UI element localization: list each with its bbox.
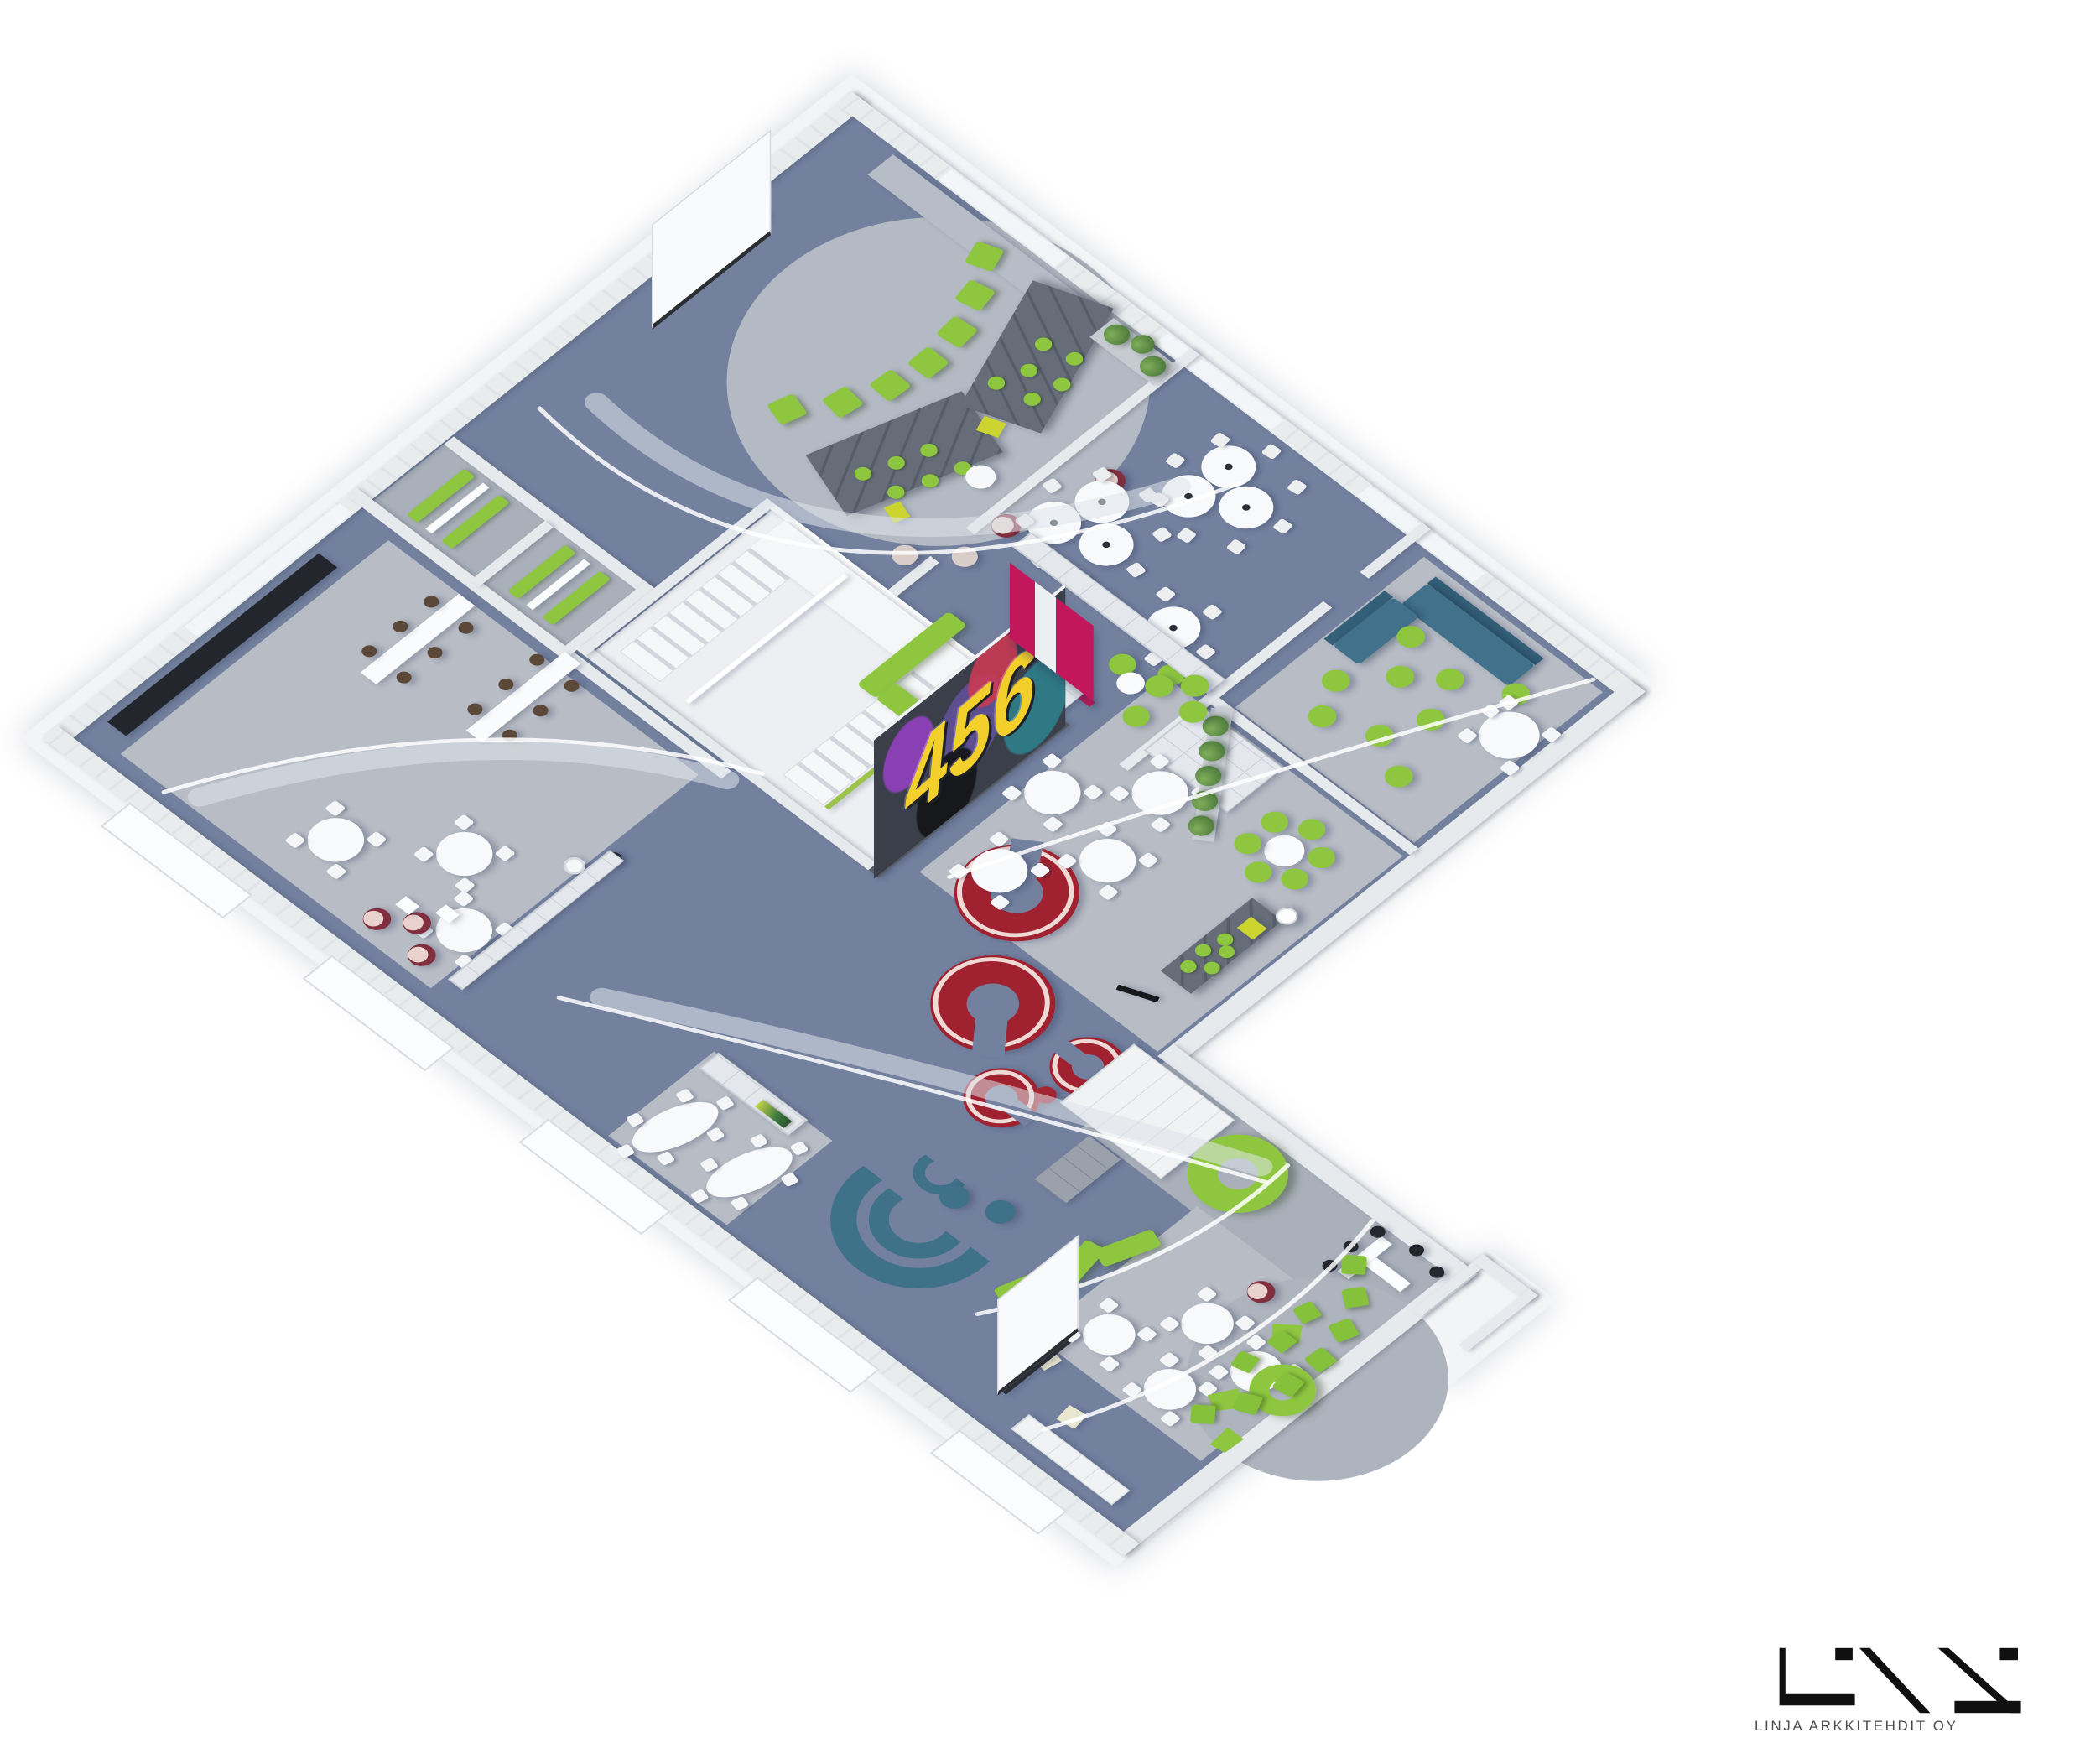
architect-logo: LINJA ARKKITEHDIT OY bbox=[1755, 1609, 2057, 1735]
logo-company-name: LINJA ARKKITEHDIT OY bbox=[1755, 1718, 2057, 1735]
curtain-central bbox=[602, 829, 1261, 1335]
floor-plan-scene: 456 LINJA ARKKITEHDIT OY bbox=[0, 0, 2080, 1764]
track-central bbox=[559, 818, 1266, 1362]
linja-logo-mark bbox=[1755, 1609, 2040, 1715]
track-south-2 bbox=[1043, 1194, 1384, 1464]
curtain-track-overlay bbox=[42, 92, 2006, 1611]
